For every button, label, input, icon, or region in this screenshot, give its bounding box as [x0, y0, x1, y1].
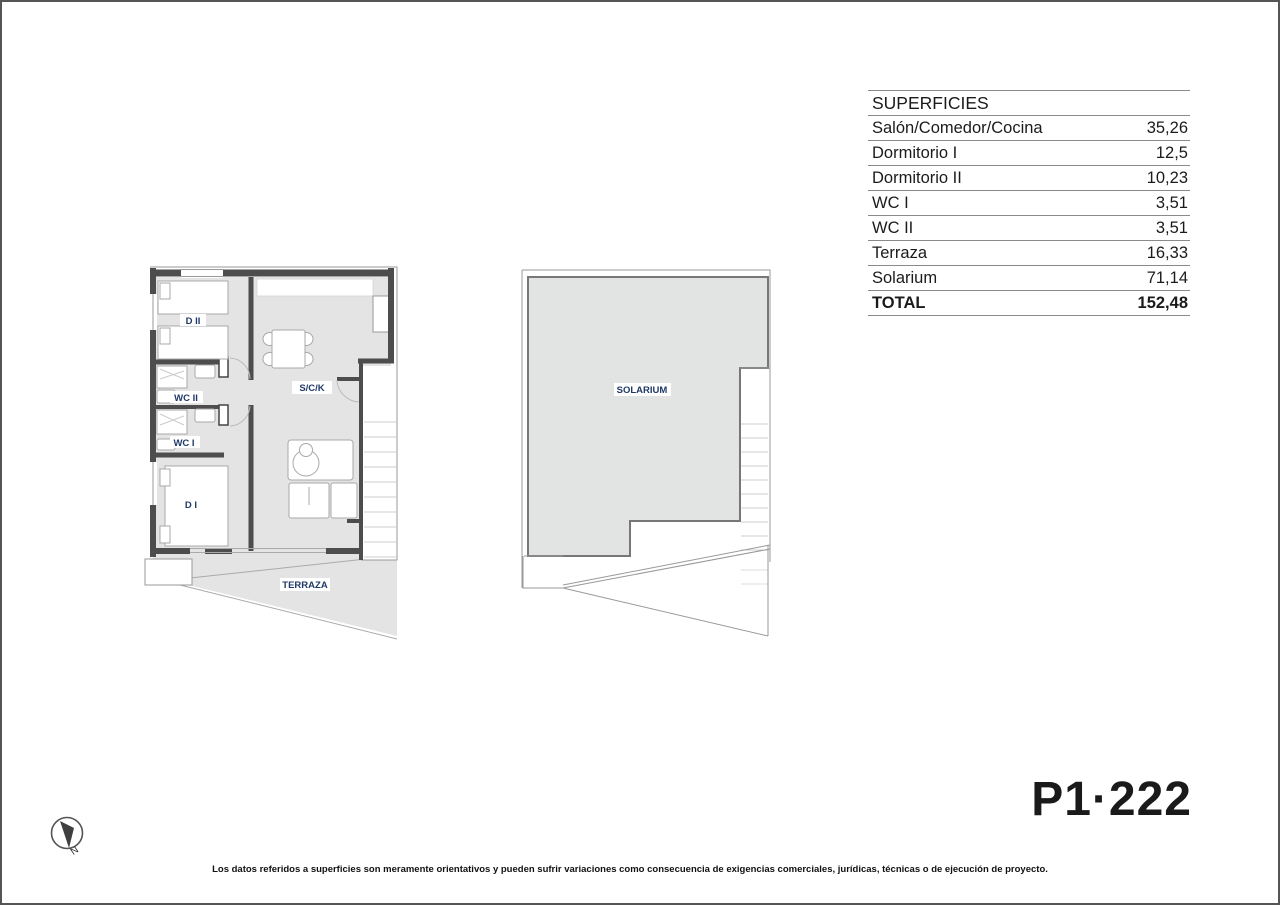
- disclaimer-text: Los datos referidos a superficies son me…: [0, 864, 1260, 875]
- shower-wc1: [157, 410, 187, 434]
- north-needle: [60, 821, 74, 848]
- row-value: 71,14: [1147, 266, 1188, 290]
- row-value: 152,48: [1138, 291, 1188, 315]
- north-arrow: N: [45, 810, 90, 868]
- terraza-step: [145, 559, 192, 585]
- surfaces-table: SUPERFICIES Salón/Comedor/Cocina 35,26 D…: [868, 90, 1190, 316]
- room-label-d2: D II: [186, 316, 201, 327]
- pillow: [160, 283, 170, 299]
- room-label-wc1: WC I: [173, 438, 194, 449]
- sink-wc2: [195, 365, 215, 378]
- table-row: Salón/Comedor/Cocina 35,26: [868, 116, 1190, 141]
- table-row: Terraza 16,33: [868, 241, 1190, 266]
- row-label: Dormitorio I: [872, 141, 957, 165]
- table-row-total: TOTAL 152,48: [868, 291, 1190, 316]
- row-label: Dormitorio II: [872, 166, 962, 190]
- row-label: Salón/Comedor/Cocina: [872, 116, 1043, 140]
- room-label-terraza: TERRAZA: [282, 580, 328, 591]
- table-row: Dormitorio II 10,23: [868, 166, 1190, 191]
- solarium-floor: [528, 277, 768, 556]
- row-value: 10,23: [1147, 166, 1188, 190]
- stairs: [363, 366, 397, 560]
- pillow: [160, 328, 170, 344]
- kitchen-faucet: [300, 444, 313, 457]
- row-label: Terraza: [872, 241, 927, 265]
- row-value: 3,51: [1156, 216, 1188, 240]
- surfaces-table-title: SUPERFICIES: [868, 91, 1190, 116]
- pillow: [160, 526, 170, 543]
- kitchen-counter: [257, 279, 373, 296]
- solarium-floor-plan: SOLARIUM: [515, 262, 777, 644]
- row-value: 12,5: [1156, 141, 1188, 165]
- row-value: 3,51: [1156, 191, 1188, 215]
- room-label-wc2: WC II: [174, 393, 198, 404]
- row-label: Solarium: [872, 266, 937, 290]
- row-value: 35,26: [1147, 116, 1188, 140]
- row-label: WC I: [872, 191, 909, 215]
- sink-wc1: [195, 409, 215, 422]
- room-label-d1: D I: [185, 500, 197, 511]
- table-row: WC II 3,51: [868, 216, 1190, 241]
- plan-code: P1·222: [1031, 772, 1192, 827]
- room-label-solarium: SOLARIUM: [617, 385, 668, 396]
- north-letter: N: [69, 845, 81, 858]
- side-unit: [331, 483, 357, 518]
- row-label: TOTAL: [872, 291, 925, 315]
- table-row: Dormitorio I 12,5: [868, 141, 1190, 166]
- table-row: WC I 3,51: [868, 191, 1190, 216]
- stairs: [741, 424, 768, 584]
- room-label-sck: S/C/K: [299, 383, 324, 394]
- pillow: [160, 469, 170, 486]
- row-value: 16,33: [1147, 241, 1188, 265]
- dining-table: [272, 330, 305, 368]
- apartment-floor-plan: D II WC II WC I D I S/C/K TERRAZA: [140, 258, 410, 650]
- row-label: WC II: [872, 216, 913, 240]
- terrace-edge: [523, 545, 770, 636]
- table-row: Solarium 71,14: [868, 266, 1190, 291]
